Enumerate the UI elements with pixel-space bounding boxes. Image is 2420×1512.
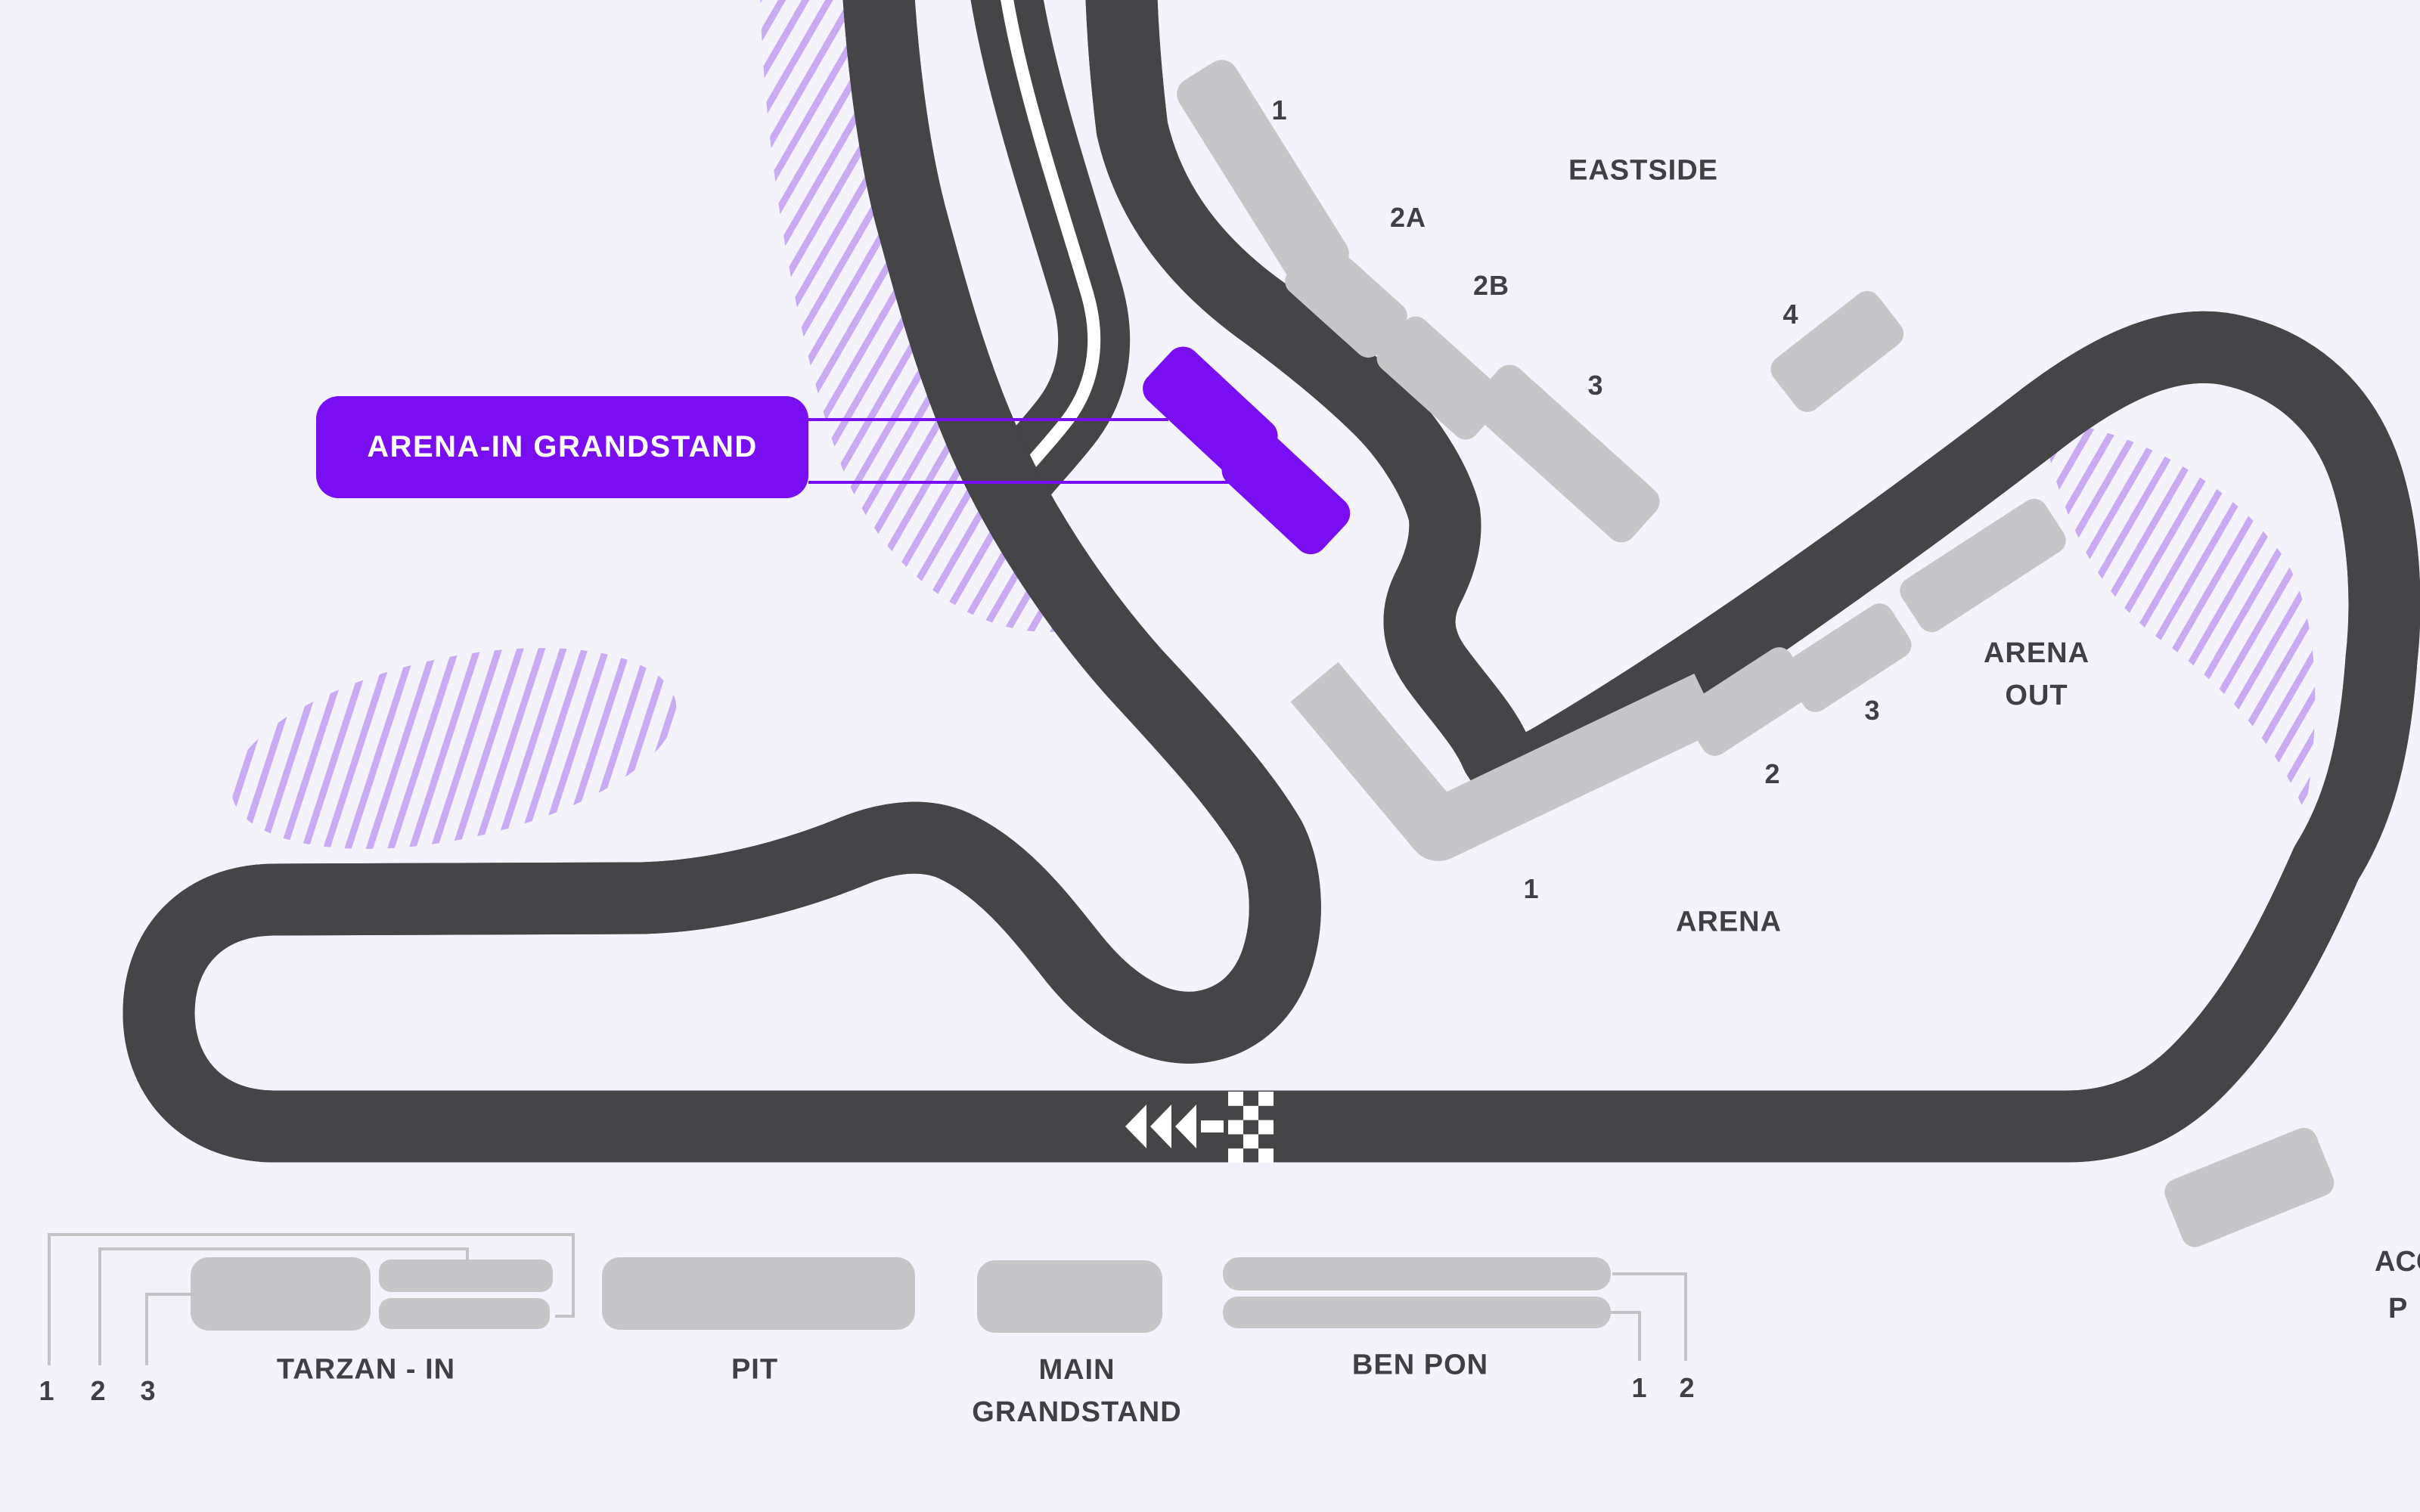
callout-number-benpon-2: 2 — [1679, 1372, 1695, 1404]
label-main-line2: GRANDSTAND — [972, 1396, 1181, 1428]
stand-tarzan-upper[interactable] — [379, 1259, 553, 1292]
stand-ben-pon-2[interactable] — [1223, 1297, 1611, 1328]
label-tarzan-in: TARZAN - IN — [277, 1354, 455, 1387]
stand-tarzan-lower[interactable] — [379, 1298, 550, 1329]
stand-number-eastside-1: 1 — [1271, 94, 1287, 126]
stand-tarzan-main[interactable] — [191, 1257, 371, 1331]
start-line-dash — [1201, 1120, 1224, 1132]
stand-number-arena-2: 2 — [1764, 758, 1780, 790]
callout-number-tarzan-1: 1 — [39, 1375, 54, 1407]
label-edge-clipped: ACC P — [2375, 1238, 2420, 1332]
label-arena-out-line1: ARENA — [1984, 637, 2090, 669]
hatch-zone-left — [213, 612, 695, 885]
stand-ben-pon-1[interactable] — [1223, 1257, 1611, 1290]
stand-pit[interactable] — [602, 1257, 915, 1330]
callout-benpon-1 — [1611, 1312, 1640, 1361]
label-pit: PIT — [731, 1354, 778, 1387]
callout-number-benpon-1: 1 — [1631, 1372, 1647, 1404]
stand-main-grandstand[interactable] — [977, 1260, 1162, 1333]
stand-number-arena-3: 3 — [1864, 695, 1880, 727]
stand-number-arena-1: 1 — [1523, 873, 1539, 905]
stand-number-eastside-3: 3 — [1587, 370, 1603, 401]
label-ben-pon: BEN PON — [1352, 1349, 1488, 1382]
label-arena-out: ARENA OUT — [1984, 632, 2090, 717]
label-arena: ARENA — [1676, 906, 1782, 939]
selection-chip-label: ARENA-IN GRANDSTAND — [367, 430, 758, 464]
stand-eastside-3[interactable] — [1465, 358, 1666, 548]
selection-chip[interactable]: ARENA-IN GRANDSTAND — [316, 396, 808, 498]
track-link-road — [1000, 0, 1094, 491]
hatch-zone-right — [2042, 422, 2315, 813]
stand-number-eastside-4: 4 — [1782, 299, 1798, 330]
label-edge-clipped-line2: P — [2375, 1285, 2420, 1332]
track-map-canvas — [0, 0, 2420, 1512]
stand-number-eastside-2a: 2A — [1390, 202, 1426, 234]
circuit-seat-map: ARENA-IN GRANDSTAND EASTSIDE ARENA OUT A… — [0, 0, 2420, 1512]
callout-number-tarzan-2: 2 — [90, 1375, 106, 1407]
label-arena-out-line2: OUT — [2005, 680, 2068, 711]
stand-access-corner[interactable] — [2161, 1123, 2338, 1251]
callout-benpon-2 — [1612, 1274, 1686, 1361]
callout-number-tarzan-3: 3 — [140, 1375, 156, 1407]
label-edge-clipped-line1: ACC — [2375, 1246, 2420, 1278]
callout-tarzan-3 — [147, 1294, 192, 1365]
label-main-line1: MAIN — [1038, 1354, 1115, 1386]
label-eastside: EASTSIDE — [1568, 155, 1718, 187]
label-main-grandstand: MAIN GRANDSTAND — [972, 1349, 1181, 1433]
stand-number-eastside-2b: 2B — [1473, 270, 1509, 302]
